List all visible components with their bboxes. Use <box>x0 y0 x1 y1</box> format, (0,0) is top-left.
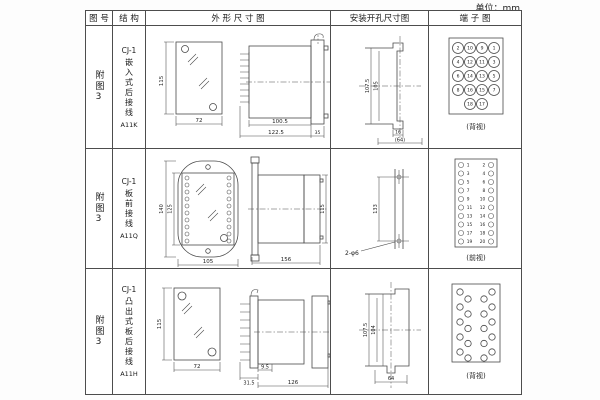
install-cell-row1: 107.5 105 16 (64) <box>331 26 429 149</box>
dim-comb-width: 31.5 <box>243 380 254 386</box>
hole-size-label: 2-φ6 <box>345 250 359 257</box>
terminal-number: 8 <box>482 188 485 194</box>
dim-side-height: 115 <box>320 204 326 214</box>
terminal-number: 10 <box>467 46 473 52</box>
terminal-number: 12 <box>467 60 473 66</box>
dim-total-width: 122.5 <box>268 130 284 136</box>
hole-layout: 133 2-φ6 <box>345 169 409 257</box>
header-fig-no: 图 号 <box>86 11 113 26</box>
model-label: A11K <box>121 121 138 129</box>
install-cell-row3: 107.5 104 64 <box>331 269 429 394</box>
terminal-diagram-a11k: 2 10 9 1 4 12 11 3 6 14 13 5 8 16 15 7 1 <box>430 26 521 148</box>
terminal-number: 18 <box>479 231 485 237</box>
dim-inner-height: 104 <box>371 325 377 335</box>
side-view: 9.5 31.5 126 <box>240 289 330 387</box>
outline-cell-row3: 115 72 9.5 31.5 <box>146 269 331 394</box>
terminal-number: 5 <box>466 180 469 186</box>
terminal-number: 17 <box>466 231 472 237</box>
structure-text: 凸出式板后接线 <box>124 297 135 367</box>
terminal-block-rear <box>452 284 500 362</box>
dim-front-inner-height: 125 <box>168 204 174 214</box>
model-label: A11Q <box>120 232 138 240</box>
terminal-number: 17 <box>479 102 485 108</box>
dim-slot-width: 16 <box>395 130 401 136</box>
terminal-number: 6 <box>456 74 459 80</box>
side-view: 100.5 122.5 35 <box>240 34 330 138</box>
cutout-profile: 107.5 105 16 (64) <box>359 36 422 145</box>
fig-no-row3: 附图3 <box>86 269 113 394</box>
terminal-number: 6 <box>482 180 485 186</box>
install-cell-row2: 133 2-φ6 <box>331 149 429 269</box>
terminal-diagram-a11q: 1 3 5 7 9 11 13 15 17 19 2 4 6 8 10 12 1 <box>430 149 521 268</box>
header-terminal-view: 端 子 图 <box>429 11 521 26</box>
fig-no-text: 附图3 <box>93 70 106 104</box>
view-caption: (背视) <box>466 122 486 131</box>
terminal-number: 9 <box>480 46 483 52</box>
terminal-number: 16 <box>479 222 485 228</box>
structure-text: 板前接线 <box>124 189 135 229</box>
header-outline-dims: 外 形 尺 寸 图 <box>146 11 331 26</box>
terminal-number: 13 <box>479 74 485 80</box>
dim-span-width: (64) <box>395 138 405 144</box>
terminal-block-rear: 2 10 9 1 4 12 11 3 6 14 13 5 8 16 15 7 1 <box>449 38 503 114</box>
terminal-number: 16 <box>467 88 473 94</box>
terminal-number: 2 <box>482 163 485 169</box>
install-diagram-a11k: 107.5 105 16 (64) <box>331 26 428 148</box>
dim-body-width: 100.5 <box>272 119 288 125</box>
header-structure: 结 构 <box>113 11 146 26</box>
structure-row1: CJ-1 嵌入式后接线 A11K <box>113 26 146 149</box>
fig-no-text: 附图3 <box>93 315 106 349</box>
terminal-number: 11 <box>479 60 485 66</box>
view-caption: (前视) <box>466 253 486 262</box>
terminal-block-front: 1 3 5 7 9 11 13 15 17 19 2 4 6 8 10 12 1 <box>455 159 497 247</box>
terminal-number: 3 <box>492 60 495 66</box>
header-mounting-holes: 安装开孔尺寸图 <box>331 11 429 26</box>
datasheet-page: 单位：mm 图 号 结 构 外 形 尺 寸 图 安装开孔尺寸图 端 子 图 附图… <box>0 0 600 400</box>
terminal-cell-row3: (背视) <box>429 269 521 394</box>
cutout-profile: 107.5 104 64 <box>359 282 421 388</box>
terminal-number: 11 <box>466 205 472 211</box>
dim-front-width: 72 <box>196 118 203 124</box>
dim-flange-width: 35 <box>315 130 321 136</box>
terminal-number: 20 <box>479 239 485 245</box>
spec-table: 图 号 结 构 外 形 尺 寸 图 安装开孔尺寸图 端 子 图 附图3 CJ-1… <box>85 10 522 395</box>
fig-no-row2: 附图3 <box>86 149 113 269</box>
outline-cell-row2: 140 125 105 115 <box>146 149 331 269</box>
terminal-number: 3 <box>466 171 469 177</box>
dim-hole-span: 133 <box>373 204 379 214</box>
model-label: A11H <box>120 370 138 378</box>
terminal-number: 1 <box>466 163 469 169</box>
series-label: CJ-1 <box>122 46 137 55</box>
structure-row2: CJ-1 板前接线 A11Q <box>113 149 146 269</box>
terminal-number: 14 <box>479 214 485 220</box>
terminal-number: 4 <box>456 60 459 66</box>
outline-diagram-a11q: 140 125 105 115 <box>146 149 330 268</box>
dim-front-height: 115 <box>157 318 163 329</box>
dim-body-width: 126 <box>288 380 299 386</box>
terminal-number: 7 <box>492 88 495 94</box>
structure-text: 嵌入式后接线 <box>124 58 135 118</box>
outline-cell-row1: 115 72 100.5 122.5 35 <box>146 26 331 149</box>
fig-no-text: 附图3 <box>93 192 106 226</box>
terminal-number: 18 <box>467 102 473 108</box>
terminal-number: 9 <box>466 197 469 203</box>
terminal-number: 1 <box>492 46 495 52</box>
dim-front-outer-height: 140 <box>159 204 165 214</box>
terminal-number: 15 <box>479 88 485 94</box>
front-view: 115 72 <box>159 42 222 126</box>
terminal-number: 10 <box>479 197 485 203</box>
dim-outer-height: 107.5 <box>363 322 369 336</box>
terminal-cell-row1: 2 10 9 1 4 12 11 3 6 14 13 5 8 16 15 7 1 <box>429 26 521 149</box>
fig-no-row1: 附图3 <box>86 26 113 149</box>
outline-diagram-a11h: 115 72 9.5 31.5 <box>146 270 330 394</box>
series-label: CJ-1 <box>122 285 137 294</box>
dim-front-width: 105 <box>203 259 214 265</box>
terminal-number: 8 <box>456 88 459 94</box>
install-diagram-a11h: 107.5 104 64 <box>331 270 428 394</box>
dim-inner-height: 105 <box>374 81 380 91</box>
terminal-number: 13 <box>466 214 472 220</box>
install-diagram-a11q: 133 2-φ6 <box>331 149 428 268</box>
terminal-number: 12 <box>479 205 485 211</box>
structure-row3: CJ-1 凸出式板后接线 A11H <box>113 269 146 394</box>
terminal-cell-row2: 1 3 5 7 9 11 13 15 17 19 2 4 6 8 10 12 1 <box>429 149 521 269</box>
view-caption: (背视) <box>466 371 486 380</box>
series-label: CJ-1 <box>122 177 137 186</box>
front-view: 140 125 105 <box>159 161 238 267</box>
terminal-number: 7 <box>466 188 469 194</box>
terminal-number: 14 <box>467 74 473 80</box>
dim-side-length: 156 <box>281 257 292 263</box>
side-view: 115 156 <box>248 157 328 265</box>
terminal-number: 15 <box>466 222 472 228</box>
dim-gap-width: 9.5 <box>261 364 269 370</box>
front-view: 115 72 <box>157 288 220 372</box>
dim-front-width: 72 <box>194 364 201 370</box>
terminal-diagram-a11h: (背视) <box>430 270 521 394</box>
terminal-number: 2 <box>456 46 459 52</box>
terminal-number: 5 <box>492 74 495 80</box>
outline-diagram-a11k: 115 72 100.5 122.5 35 <box>146 26 330 148</box>
terminal-number: 4 <box>482 171 485 177</box>
terminal-number: 19 <box>466 239 472 245</box>
dim-outer-height: 107.5 <box>365 79 371 93</box>
dim-front-height: 115 <box>159 75 165 86</box>
dim-span-width: 64 <box>388 376 394 382</box>
